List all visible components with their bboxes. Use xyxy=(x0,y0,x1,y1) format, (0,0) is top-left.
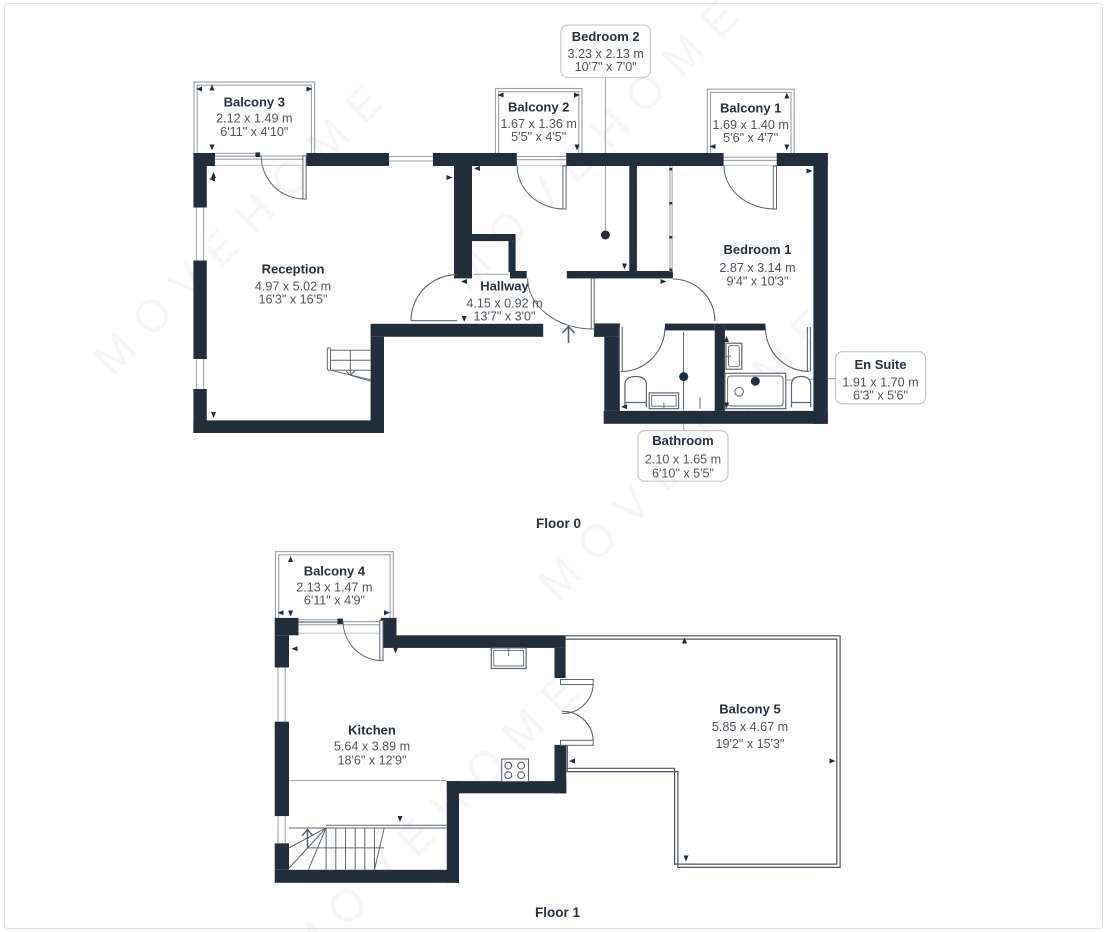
svg-text:16'3" x 16'5": 16'3" x 16'5" xyxy=(258,292,327,306)
svg-text:Bedroom 1: Bedroom 1 xyxy=(724,242,792,257)
svg-text:2.13 x 1.47 m: 2.13 x 1.47 m xyxy=(296,581,372,595)
svg-text:2.87 x 3.14 m: 2.87 x 3.14 m xyxy=(719,261,795,275)
svg-text:2.10 x 1.65 m: 2.10 x 1.65 m xyxy=(645,453,721,467)
svg-text:Floor 0: Floor 0 xyxy=(536,516,581,531)
svg-text:18'6" x 12'9": 18'6" x 12'9" xyxy=(337,754,406,768)
svg-text:6'3" x 5'6": 6'3" x 5'6" xyxy=(853,388,908,402)
svg-text:4.15 x 0.92 m: 4.15 x 0.92 m xyxy=(466,297,542,311)
svg-text:2.12 x 1.49 m: 2.12 x 1.49 m xyxy=(216,112,292,126)
svg-text:Hallway: Hallway xyxy=(480,279,529,294)
svg-text:Reception: Reception xyxy=(262,262,325,277)
svg-text:Balcony 4: Balcony 4 xyxy=(304,564,366,579)
svg-text:1.69 x 1.40 m: 1.69 x 1.40 m xyxy=(713,118,789,132)
svg-text:6'11" x 4'10": 6'11" x 4'10" xyxy=(220,125,288,139)
svg-text:Kitchen: Kitchen xyxy=(348,723,396,738)
svg-text:6'11" x 4'9": 6'11" x 4'9" xyxy=(304,594,365,608)
svg-text:13'7" x 3'0": 13'7" x 3'0" xyxy=(473,310,535,324)
svg-text:Balcony 2: Balcony 2 xyxy=(508,100,569,115)
svg-text:6'10" x 5'5": 6'10" x 5'5" xyxy=(652,467,714,481)
svg-text:5'6" x 4'7": 5'6" x 4'7" xyxy=(723,131,778,145)
svg-text:10'7" x 7'0": 10'7" x 7'0" xyxy=(575,60,637,74)
svg-text:19'2" x 15'3": 19'2" x 15'3" xyxy=(715,737,784,751)
svg-text:Balcony 1: Balcony 1 xyxy=(720,101,781,116)
svg-text:Balcony 3: Balcony 3 xyxy=(224,95,285,110)
svg-text:5'5" x 4'5": 5'5" x 4'5" xyxy=(511,130,566,144)
svg-text:Balcony 5: Balcony 5 xyxy=(719,702,780,717)
svg-text:Bedroom 2: Bedroom 2 xyxy=(572,29,640,44)
svg-text:1.91 x 1.70 m: 1.91 x 1.70 m xyxy=(842,376,918,390)
svg-text:5.85 x 4.67 m: 5.85 x 4.67 m xyxy=(712,720,788,734)
svg-text:9'4" x 10'3": 9'4" x 10'3" xyxy=(726,274,788,288)
svg-text:1.67 x 1.36 m: 1.67 x 1.36 m xyxy=(501,117,577,131)
svg-text:3.23 x 2.13 m: 3.23 x 2.13 m xyxy=(568,47,644,61)
svg-text:En Suite: En Suite xyxy=(854,357,906,372)
svg-text:Bathroom: Bathroom xyxy=(652,433,713,448)
svg-text:5.64 x 3.89 m: 5.64 x 3.89 m xyxy=(334,740,410,754)
svg-text:Floor 1: Floor 1 xyxy=(535,905,580,920)
